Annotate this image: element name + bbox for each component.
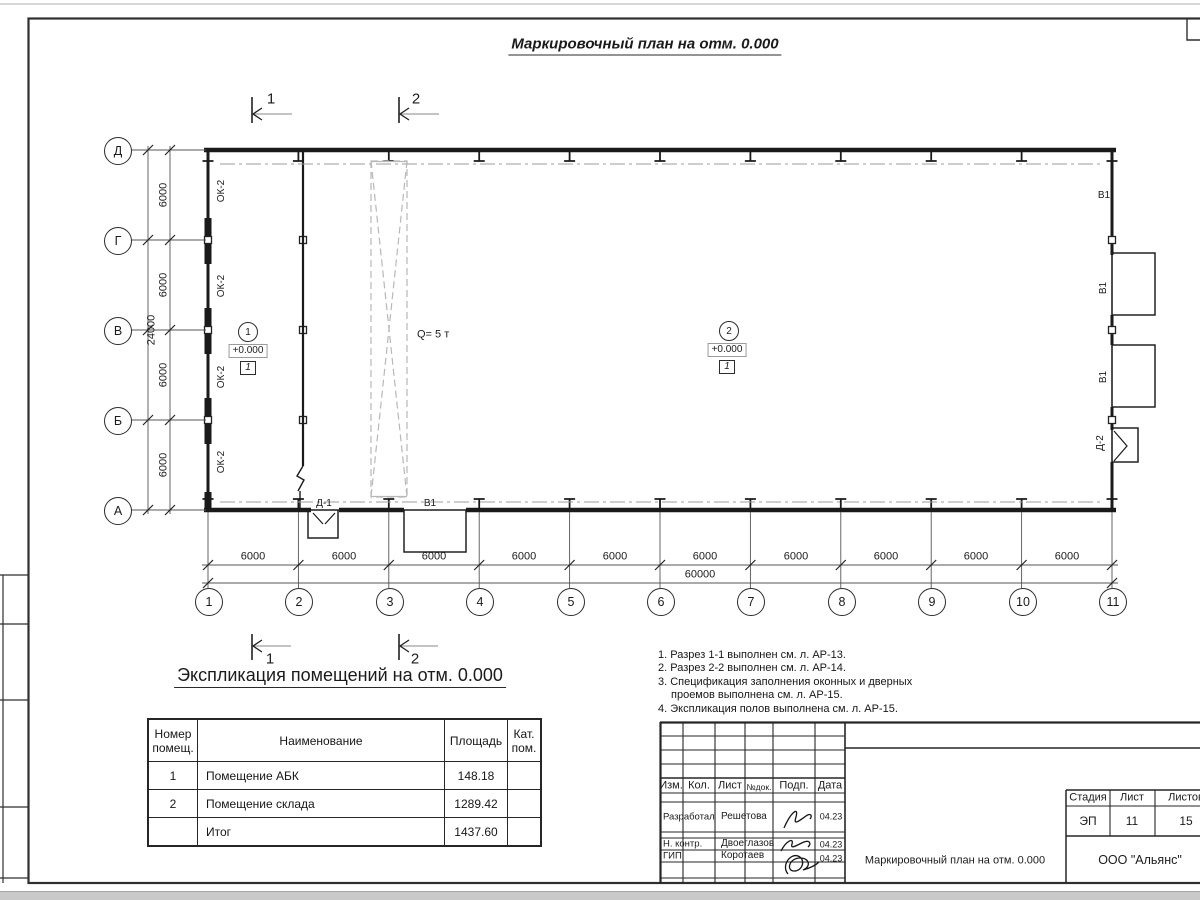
note-line: 2. Разрез 2-2 выполнен см. л. АР-14. [658,662,912,675]
room-2-elevation: +0.000 [708,343,747,357]
tb-sheets-value: 15 [1179,815,1192,827]
axis-col-8: 8 [828,588,856,616]
section-1-label: 1 [267,92,275,107]
axis-col-3: 3 [376,588,404,616]
axis-row-b: Б [104,407,132,435]
window-label: ОК-2 [217,180,227,203]
axis-col-4: 4 [466,588,494,616]
tb-date: 04.23 [820,841,843,850]
col-header-area: Площадь [445,719,508,762]
tb-col-ndok: №док. [747,783,772,792]
table-row: Итог 1437.60 [148,818,541,847]
signature-reshetova [784,811,811,828]
dim-bay-h: 6000 [964,552,988,563]
room-2-floor-type: 1 [719,360,735,374]
section-marks [252,97,439,660]
tb-role: ГИП [663,851,682,861]
gate-label: В1 [424,499,436,509]
dim-total-h: 60000 [685,570,716,581]
bottom-gate-porch [404,510,466,552]
right-dock-2 [1112,345,1155,407]
note-line: 3. Спецификация заполнения оконных и две… [658,676,912,689]
column-marks [203,152,1118,508]
cell-name: Помещение склада [198,790,445,818]
tb-sheets-header: Листов [1168,793,1200,804]
note-line: 4. Экспликация полов выполнена см. л. АР… [658,703,912,716]
axis-row-d: Д [104,137,132,165]
dim-bay-h: 6000 [512,552,536,563]
col-header-name: Наименование [198,719,445,762]
crane-symbol [371,161,407,497]
col-header-num: Номер помещ. [148,719,198,762]
cell-area: 148.18 [445,762,508,790]
room-1-number: 1 [238,322,258,342]
dim-bay-h: 6000 [422,552,446,563]
plan-title: Маркировочный план на отм. 0.000 [508,37,781,56]
dim-bay-h: 6000 [332,552,356,563]
signature-dvoeglazov [781,840,810,851]
cell-area: 1437.60 [445,818,508,847]
axis-col-11: 11 [1099,588,1127,616]
window-label: ОК-2 [217,275,227,298]
axis-col-9: 9 [918,588,946,616]
room-spec-table: Номер помещ. Наименование Площадь Кат. п… [147,718,542,847]
tb-date: 04.23 [820,813,843,822]
dim-bay-h: 6000 [241,552,265,563]
tb-sheet-value: 11 [1126,815,1138,827]
axis-col-2: 2 [285,588,313,616]
tb-company: ООО "Альянс" [1098,854,1182,867]
dim-bay-h: 6000 [784,552,808,563]
door2-label: Д-2 [1096,435,1106,451]
col-header-cat: Кат. пом. [508,719,542,762]
axis-col-6: 6 [647,588,675,616]
tb-stage-header: Стадия [1069,793,1107,804]
right-dock-1 [1112,253,1155,315]
tb-name: Двоеглазов [721,839,774,849]
tb-role: Н. контр. [663,839,702,849]
room-1-floor-type: 1 [240,361,256,375]
tb-sheet-header: Лист [1120,793,1144,804]
dim-bay-h: 6000 [693,552,717,563]
dim-bay-h: 6000 [874,552,898,563]
tb-col-podp: Подп. [779,781,808,792]
dim-bay-v: 6000 [159,183,170,207]
dashdot-lines [220,164,1100,502]
axis-col-7: 7 [737,588,765,616]
section-2-label: 2 [412,92,420,107]
dim-bay-h: 6000 [603,552,627,563]
cell-num: 1 [148,762,198,790]
dim-bay-v: 6000 [159,453,170,477]
note-line: проемов выполнена см. л. АР-15. [658,689,912,702]
signatures [781,811,819,874]
dim-bay-v: 6000 [159,273,170,297]
tb-doc-title: Маркировочный план на отм. 0.000 [865,856,1045,867]
axis-col-1: 1 [195,588,223,616]
window-label: ОК-2 [217,366,227,389]
cell-num [148,818,198,847]
room-1-elevation: +0.000 [229,344,268,358]
spec-heading: Экспликация помещений на отм. 0.000 [174,666,506,688]
signature-korotaev [785,856,819,874]
cell-cat [508,818,542,847]
table-row: 1 Помещение АБК 148.18 [148,762,541,790]
window-label: ОК-2 [217,451,227,474]
note-line: 1. Разрез 1-1 выполнен см. л. АР-13. [658,649,912,662]
door1-label: Д-1 [316,499,332,509]
tb-name: Коротаев [721,851,764,861]
cell-num: 2 [148,790,198,818]
tb-col-izm: Изм. [659,781,683,792]
cell-name: Итог [198,818,445,847]
tb-col-list: Лист [718,781,742,792]
tb-col-data: Дата [818,781,842,792]
dim-total-v: 24000 [147,315,158,346]
cell-area: 1289.42 [445,790,508,818]
table-header-row: Номер помещ. Наименование Площадь Кат. п… [148,719,541,762]
cell-cat [508,762,542,790]
drawing-sheet-view: Маркировочный план на отм. 0.000 Д Г В Б… [0,0,1200,900]
left-margin-stamp [0,575,28,883]
tb-role: Разработал [663,812,715,822]
gate-label: В1 [1099,282,1109,294]
cell-name: Помещение АБК [198,762,445,790]
room-2-number: 2 [719,321,739,341]
axis-col-5: 5 [557,588,585,616]
axis-row-v: В [104,317,132,345]
dim-bay-v: 6000 [159,363,170,387]
table-row: 2 Помещение склада 1289.42 [148,790,541,818]
pilaster-squares [205,237,1116,424]
axis-row-g: Г [104,227,132,255]
gate-label: В1 [1098,191,1110,201]
building-walls [204,148,1116,512]
axis-col-10: 10 [1009,588,1037,616]
cell-cat [508,790,542,818]
tb-col-kol: Кол. [688,781,710,792]
crane-capacity-label: Q= 5 т [417,330,449,341]
axis-row-a: А [104,497,132,525]
tb-name: Решетова [721,812,767,822]
gate-label: В1 [1099,371,1109,383]
tb-date: 04.23 [820,855,843,864]
dim-bay-h: 6000 [1055,552,1079,563]
tb-stage-value: ЭП [1079,815,1096,827]
notes-block: 1. Разрез 1-1 выполнен см. л. АР-13. 2. … [658,649,912,716]
opening-threshold-lines [311,255,1112,510]
